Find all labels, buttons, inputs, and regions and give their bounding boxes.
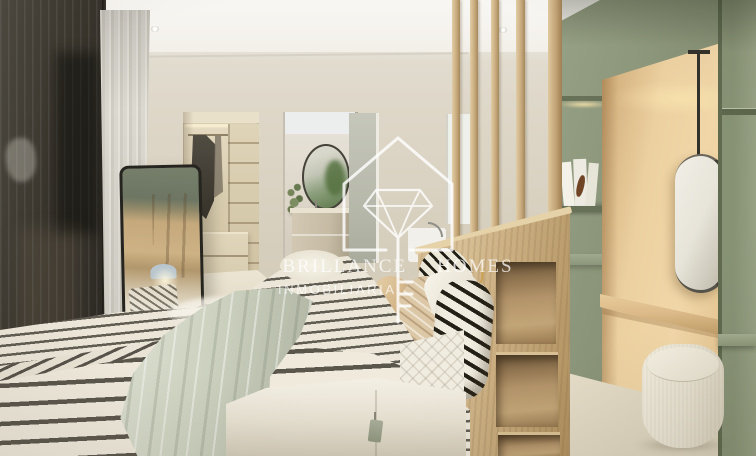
mirror-rod [697,52,700,160]
brand-name: BRILLANCE HOMES [276,256,520,278]
book [585,163,599,208]
house-diamond-key-logo-icon [340,134,456,334]
brand-tagline: INMOBILIARIA [278,282,397,297]
shirt-reflection [3,136,38,183]
closet-rail [188,134,250,136]
cubby [498,432,560,456]
pouf-lid [647,347,719,382]
bedroom-interior-photo: BRILLANCE HOMES INMOBILIARIA [0,0,756,456]
clothes-reflection [55,52,99,234]
hanging-garment [213,136,223,198]
closet-led-light [185,124,257,127]
shelf-shadow [718,0,756,52]
closet-soffit [183,112,259,124]
shelf [722,108,756,115]
brand-name-right: HOMES [437,256,514,278]
brand-name-left: BRILLANCE [282,256,407,278]
label-tag [368,419,384,442]
book-cover-art [575,174,587,197]
sage-shelving-unit [556,0,756,456]
ceiling-spotlight-icon [498,27,508,33]
watermark: BRILLANCE HOMES INMOBILIARIA [256,126,520,364]
pouf [642,344,724,450]
bed-base [226,378,466,456]
ceiling-spotlight-icon [150,26,160,32]
